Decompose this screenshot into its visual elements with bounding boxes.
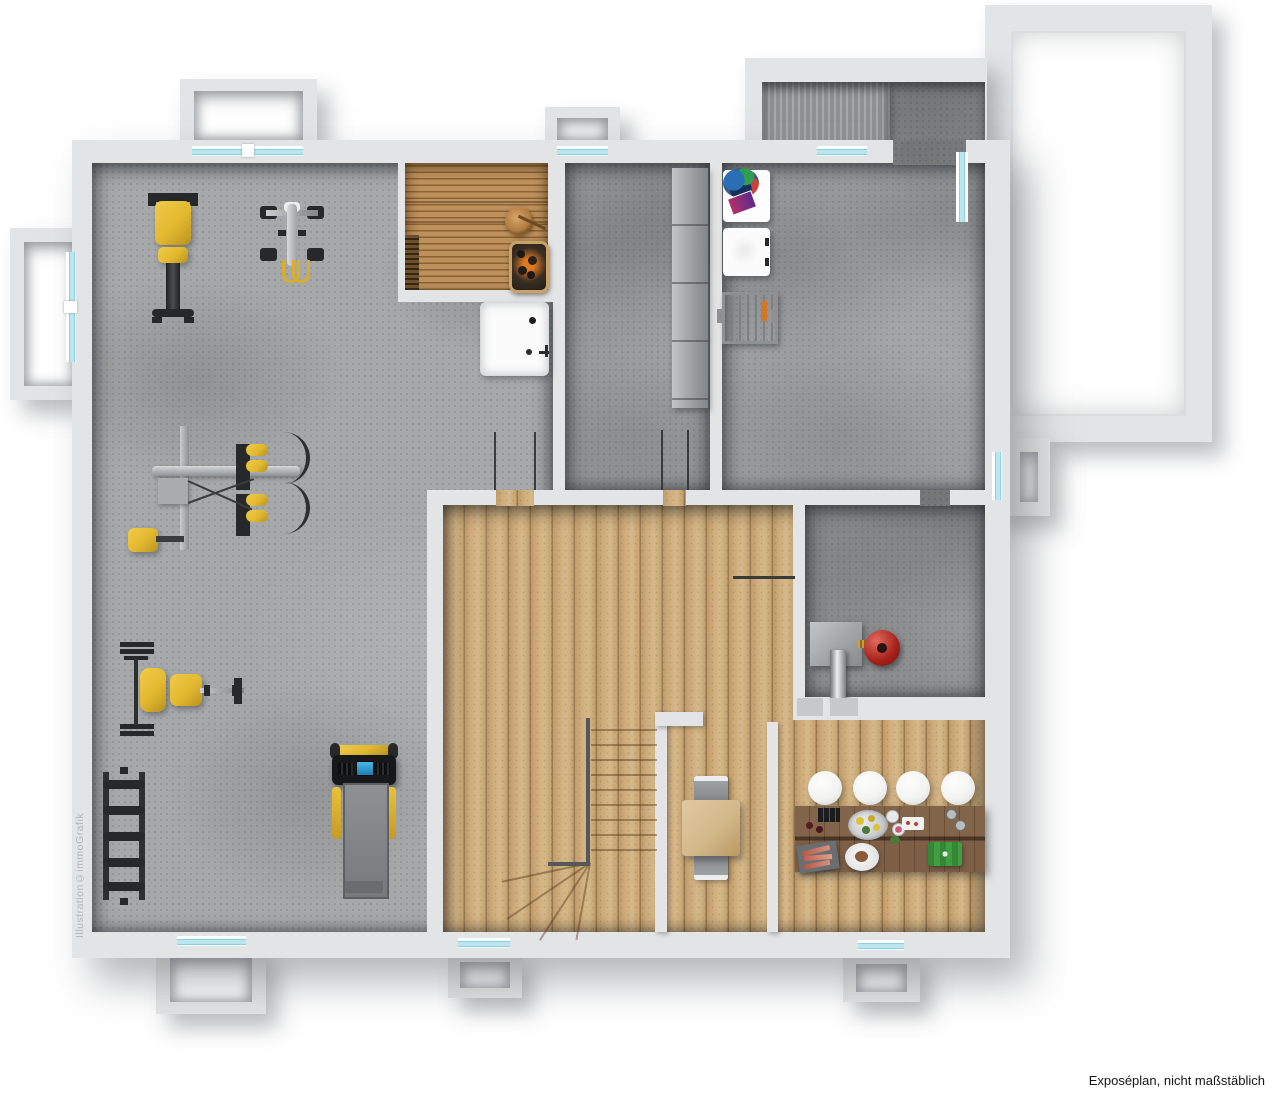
window-bottom-bar — [858, 940, 904, 950]
illustrator-watermark: Illustration©immoGrafik — [74, 798, 90, 938]
wall-pier — [797, 698, 823, 716]
bar-stool — [941, 771, 975, 805]
shower-faucet-handle — [545, 345, 548, 357]
window-bottom-gym — [177, 936, 246, 946]
window-mullion — [242, 144, 254, 157]
door-jamb — [534, 432, 536, 490]
bay-right-lightwell — [1020, 452, 1038, 502]
door-corridor-hobby — [663, 490, 686, 506]
wall-pier — [830, 698, 858, 716]
gym-bench-press-machine — [148, 193, 198, 325]
door-jamb — [494, 432, 496, 490]
door-gym-hobby — [496, 490, 534, 506]
board-game-box — [928, 842, 962, 866]
cherry — [816, 826, 823, 833]
garnish — [890, 836, 900, 844]
bay-bottom-wood-lightwell — [460, 962, 510, 988]
washing-machine — [723, 170, 770, 222]
window-laundry-right — [956, 152, 968, 222]
shower-drain — [529, 317, 536, 324]
basement-floor-plan: Illustration©immoGrafik Exposéplan, nich… — [0, 0, 1279, 1096]
gym-cycle-machine — [260, 200, 324, 284]
chair — [694, 776, 728, 802]
bar-counter — [795, 806, 985, 872]
snack-plate — [845, 843, 879, 871]
expansion-vessel — [864, 630, 900, 666]
sauna-stone — [517, 250, 525, 258]
window-laundry-top — [817, 146, 867, 156]
glass-bowl — [886, 810, 899, 823]
gym-treadmill — [330, 743, 398, 895]
door-jamb — [661, 430, 663, 490]
window-bottom-wood — [458, 938, 510, 948]
bar-stool — [853, 771, 887, 805]
door-jamb — [687, 430, 689, 490]
plan-disclaimer: Exposéplan, nicht maßstäblich — [1089, 1073, 1265, 1088]
fruit-platter — [848, 810, 888, 840]
bay-bottom-bar-lightwell — [856, 964, 907, 992]
chocolate-box — [818, 808, 840, 822]
sauna-heater — [509, 241, 549, 293]
staircase-flight — [591, 716, 657, 858]
lightwell-interior — [1011, 31, 1186, 416]
wall-dining-nook — [767, 722, 778, 932]
stair-handrail — [548, 862, 590, 866]
gym-multi-station — [128, 418, 312, 564]
shower-tray — [480, 302, 549, 376]
cherry — [806, 822, 813, 829]
treadmill-display — [356, 761, 374, 776]
gym-weight-bench — [116, 638, 242, 746]
bay-bottom-gym-lightwell — [170, 958, 252, 1002]
sauna-backrest — [405, 235, 419, 290]
chair — [694, 854, 728, 880]
bay-top-left-lightwell — [194, 91, 303, 140]
window-mullion — [64, 301, 77, 313]
bottle-cap — [955, 820, 966, 831]
cutting-board — [796, 840, 840, 873]
sugar-tray — [902, 817, 924, 830]
sauna-stone — [528, 256, 537, 265]
bar-stool — [808, 771, 842, 805]
gym-dumbbell-rack — [103, 770, 145, 902]
window-top-middle — [557, 146, 608, 156]
towel — [761, 301, 767, 321]
bar-stool — [896, 771, 930, 805]
dryer — [723, 228, 770, 276]
staircase-winder — [548, 856, 657, 932]
shower-drain-small — [526, 349, 532, 355]
room-sauna — [405, 163, 548, 290]
door-laundry-heating — [920, 490, 950, 506]
drying-rack — [722, 292, 778, 344]
sauna-bench-edge — [405, 201, 548, 203]
sauna-stone — [527, 271, 535, 279]
wall-staircase-top — [655, 712, 703, 726]
stair-handrail — [586, 718, 590, 866]
bay-top-middle-lightwell — [557, 118, 608, 140]
boiler-flue-pipe — [830, 650, 846, 704]
sauna-stone — [518, 266, 527, 275]
dining-table — [682, 800, 740, 856]
bottle-cap — [946, 809, 957, 820]
window-heating-right — [992, 452, 1002, 500]
storage-shelf — [672, 168, 708, 408]
glass-partition — [733, 576, 795, 579]
